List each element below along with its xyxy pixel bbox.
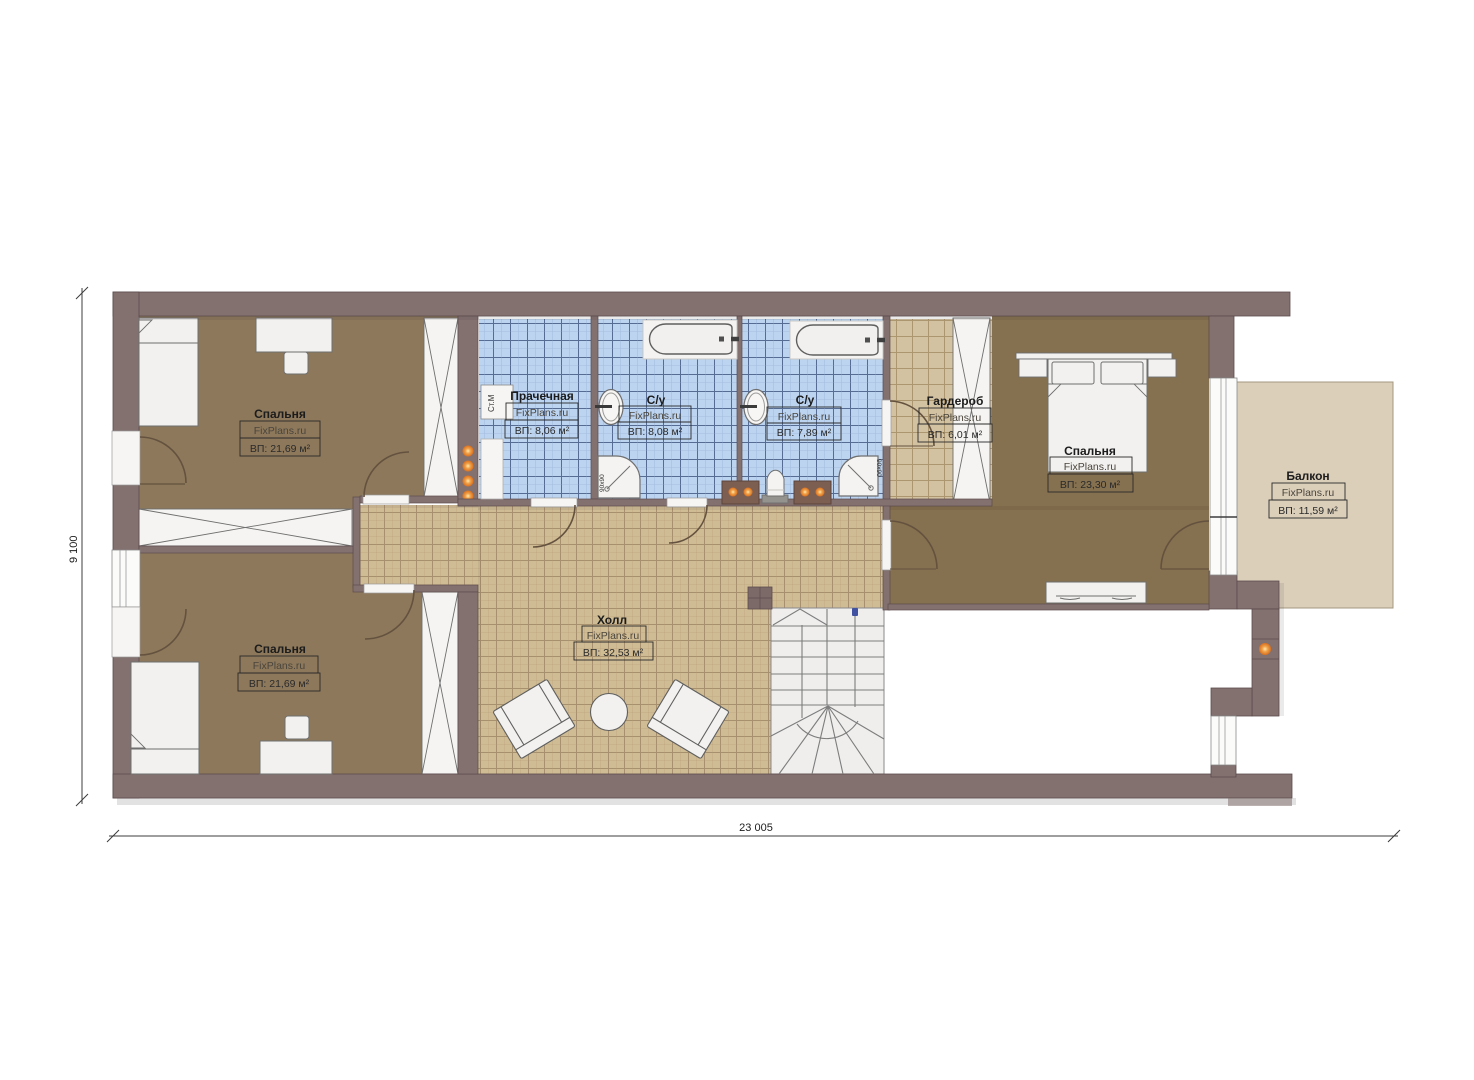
svg-text:23 005: 23 005: [739, 822, 773, 834]
svg-text:FixPlans.ru: FixPlans.ru: [929, 412, 982, 424]
svg-text:9 100: 9 100: [68, 535, 80, 563]
svg-text:ВП: 32,53 м²: ВП: 32,53 м²: [583, 647, 644, 659]
svg-text:ВП: 6,01 м²: ВП: 6,01 м²: [928, 429, 983, 441]
svg-text:Спальня: Спальня: [254, 642, 306, 656]
svg-text:ВП: 21,69 м²: ВП: 21,69 м²: [250, 443, 311, 455]
svg-text:FixPlans.ru: FixPlans.ru: [1282, 487, 1335, 499]
svg-text:FixPlans.ru: FixPlans.ru: [587, 630, 640, 642]
svg-text:С/у: С/у: [796, 393, 815, 407]
svg-text:Холл: Холл: [597, 613, 627, 627]
svg-text:Прачечная: Прачечная: [510, 389, 574, 403]
svg-text:FixPlans.ru: FixPlans.ru: [629, 410, 682, 422]
svg-text:FixPlans.ru: FixPlans.ru: [516, 407, 569, 419]
svg-text:FixPlans.ru: FixPlans.ru: [254, 425, 307, 437]
svg-text:FixPlans.ru: FixPlans.ru: [778, 411, 831, 423]
svg-text:Спальня: Спальня: [254, 407, 306, 421]
svg-text:ВП: 23,30 м²: ВП: 23,30 м²: [1060, 479, 1121, 491]
svg-text:ВП: 8,08 м²: ВП: 8,08 м²: [628, 426, 683, 438]
svg-text:ВП: 8,06 м²: ВП: 8,06 м²: [515, 425, 570, 437]
svg-text:90х90: 90х90: [875, 459, 882, 477]
svg-text:Балкон: Балкон: [1286, 469, 1329, 483]
svg-text:FixPlans.ru: FixPlans.ru: [253, 660, 306, 672]
svg-text:FixPlans.ru: FixPlans.ru: [1064, 461, 1117, 473]
svg-text:Спальня: Спальня: [1064, 444, 1116, 458]
svg-text:90х90: 90х90: [599, 474, 606, 492]
svg-text:С/у: С/у: [647, 393, 666, 407]
svg-text:Ст.М: Ст.М: [487, 394, 496, 412]
svg-text:Гардероб: Гардероб: [927, 394, 984, 408]
svg-text:ВП: 11,59 м²: ВП: 11,59 м²: [1278, 505, 1338, 517]
svg-text:ВП: 7,89 м²: ВП: 7,89 м²: [777, 427, 832, 439]
svg-text:ВП: 21,69 м²: ВП: 21,69 м²: [249, 678, 310, 690]
